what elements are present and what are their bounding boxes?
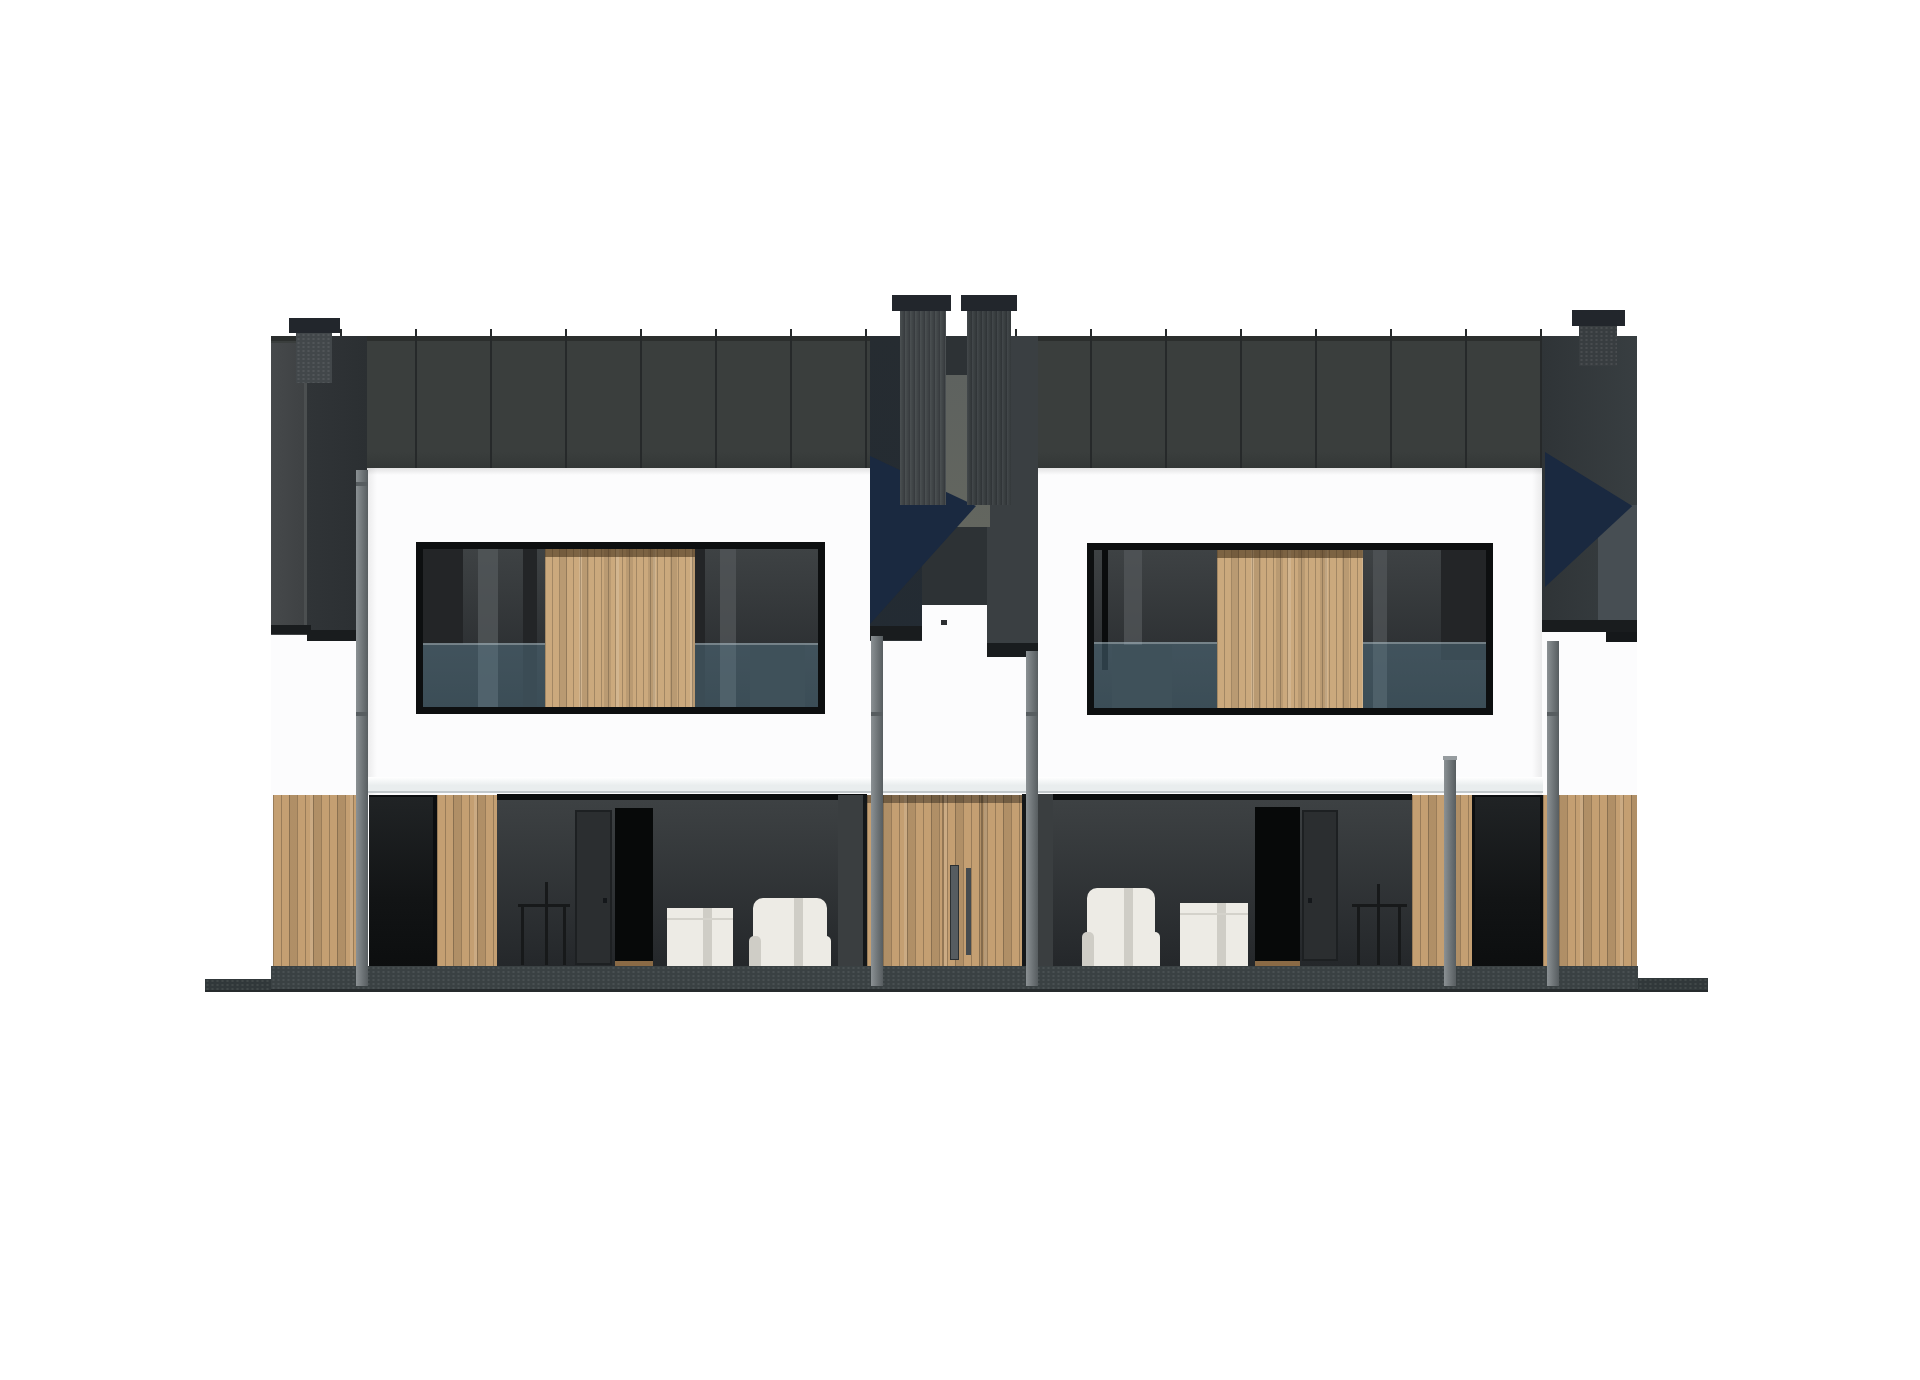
gable-left-fascia xyxy=(271,625,311,634)
window-wood-infill-panel xyxy=(545,549,695,707)
pipe-cap xyxy=(1443,756,1457,760)
chimney-center-left xyxy=(892,295,951,505)
downpipe-niche-right xyxy=(1026,651,1038,986)
dark-doorway xyxy=(615,808,653,961)
door-handle-dot xyxy=(603,898,607,903)
glass-balustrade xyxy=(695,643,818,707)
armchair-arm xyxy=(749,936,761,967)
facade-corner-shadow-left xyxy=(367,468,377,795)
interior-table-leg xyxy=(521,907,524,965)
interior-sofa xyxy=(667,908,733,967)
pipe-joint xyxy=(871,712,883,716)
wood-top-shadow xyxy=(1217,550,1363,558)
window-wood-infill-panel xyxy=(1217,550,1363,708)
downpipe-terrace-right xyxy=(1444,756,1456,986)
chimney-right xyxy=(1572,310,1625,366)
interior-cabinet-silhouette xyxy=(423,549,463,644)
wood-shutter-right xyxy=(1412,795,1472,968)
entrance-door-handle xyxy=(966,868,971,955)
gable-left-edge-highlight xyxy=(304,343,307,633)
chimney-cap xyxy=(892,295,951,311)
interior-table-leg xyxy=(1357,907,1360,965)
interior-armchair xyxy=(1087,888,1155,967)
chimney-body xyxy=(296,333,332,383)
downpipe-left-gable xyxy=(356,470,368,986)
entrance-doors-wood xyxy=(867,795,1022,968)
door-handle-dot xyxy=(1308,898,1312,903)
window-glass-pane xyxy=(1363,550,1486,708)
ground-platform xyxy=(271,966,1638,992)
chimney-cap xyxy=(1572,310,1625,326)
chimney-body xyxy=(1579,326,1617,366)
pipe-joint xyxy=(1026,712,1038,716)
armchair-arm xyxy=(819,936,831,967)
armchair-arm xyxy=(1082,932,1094,967)
interior-chair-back xyxy=(545,882,548,965)
interior-chair-back xyxy=(1377,884,1380,965)
interior-table-leg xyxy=(1398,907,1401,965)
gable-right-fascia-lip xyxy=(1606,632,1637,642)
interior-table-leg xyxy=(563,907,566,965)
gable-right xyxy=(1542,336,1637,645)
chimney-body xyxy=(967,311,1011,505)
dark-opening-right xyxy=(1475,797,1540,968)
glazing-head-shadow xyxy=(1022,794,1412,800)
sofa-back-edge xyxy=(667,918,733,920)
pipe-joint xyxy=(356,482,368,486)
elevation-render xyxy=(0,0,1920,1380)
doorbell-dot xyxy=(941,620,947,625)
interior-armchair xyxy=(753,898,827,967)
sofa-back-edge xyxy=(1180,913,1248,915)
ground-floor xyxy=(271,795,1637,973)
gable-left xyxy=(271,343,367,641)
interior-door xyxy=(1302,810,1338,961)
gable-left-outer xyxy=(271,343,307,635)
glass-balustrade xyxy=(1094,642,1217,708)
gable-right-fascia xyxy=(1542,620,1637,632)
door-gap xyxy=(981,795,983,968)
interior-door xyxy=(575,810,612,965)
glass-balustrade xyxy=(1363,642,1486,708)
niche-white-inset xyxy=(922,605,987,668)
chimney-cap xyxy=(289,318,340,333)
chimney-cap xyxy=(961,295,1017,311)
downpipe-niche-left xyxy=(871,636,883,986)
pipe-joint xyxy=(356,712,368,716)
upper-window-left xyxy=(416,542,825,714)
dark-opening-left xyxy=(369,797,433,968)
dark-doorway xyxy=(1255,807,1300,961)
glazing-right-house xyxy=(1022,794,1412,968)
chimney-center-right xyxy=(961,295,1017,505)
glazing-head-shadow xyxy=(497,794,867,800)
glazing-left-house xyxy=(497,794,867,968)
upper-window-right xyxy=(1087,543,1493,715)
wood-cladding-left xyxy=(273,795,357,973)
facade-corner-shadow-right xyxy=(1532,468,1542,795)
door-gap xyxy=(942,795,944,968)
entrance-door-handle xyxy=(950,865,959,960)
chimney-left xyxy=(289,318,340,383)
ground-platform-right-extension xyxy=(1638,978,1708,992)
floor-slab-line xyxy=(367,777,1543,793)
wood-top-shadow xyxy=(867,795,1022,803)
window-glass-pane xyxy=(695,549,818,707)
wood-top-shadow xyxy=(545,549,695,557)
pipe-joint xyxy=(1547,712,1559,716)
chimney-body xyxy=(900,311,946,505)
downpipe-right-gable xyxy=(1547,641,1559,986)
window-glass-pane xyxy=(1094,550,1217,708)
wood-shutter-left xyxy=(437,795,497,968)
window-glass-pane xyxy=(423,549,545,707)
ground-platform-left-extension xyxy=(205,979,271,992)
armchair-arm xyxy=(1148,932,1160,967)
glazing-mullion xyxy=(838,795,863,968)
interior-sofa xyxy=(1180,903,1248,967)
glass-balustrade xyxy=(423,643,545,707)
